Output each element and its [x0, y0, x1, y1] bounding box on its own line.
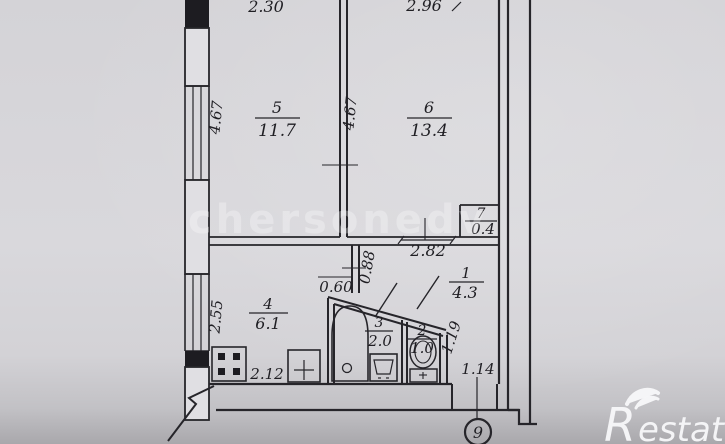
room-1-label: 1 4.3 — [449, 264, 484, 302]
logo-letter-r: R — [604, 398, 636, 444]
wall-segment — [185, 351, 209, 367]
dim-top-left: 2.30 — [247, 0, 284, 16]
room-5-number: 5 — [272, 98, 282, 117]
dim-top-right: 2.96 — [405, 0, 442, 15]
washbasin-icon — [370, 354, 397, 381]
room-4-label: 4 6.1 — [249, 295, 288, 333]
restate-logo: R estate — [604, 390, 725, 444]
wall-step — [508, 410, 537, 424]
entrance-number: 9 — [473, 423, 483, 442]
logo-text: estate — [638, 410, 725, 444]
room-4-area: 6.1 — [255, 314, 280, 333]
dimension-tick — [452, 2, 461, 11]
room-2-area: 1.0 — [410, 339, 434, 357]
floor-plan-drawing: 9 5 11.7 6 13.4 — [0, 0, 725, 444]
room-6-number: 6 — [424, 98, 434, 117]
window-icon — [185, 274, 209, 351]
wall-segment — [185, 0, 209, 28]
room-5-label: 5 11.7 — [255, 98, 300, 141]
dim-kitchen-bottom: 2.12 — [249, 365, 283, 383]
dim-bath-door: 0.60 — [319, 278, 353, 296]
dim-hall-right: 1.19 — [438, 318, 466, 356]
floorplan-photo: 9 5 11.7 6 13.4 — [0, 0, 725, 444]
bathtub-icon — [332, 306, 368, 381]
stove-icon — [212, 347, 246, 381]
room-1-number: 1 — [461, 264, 471, 282]
room-4-number: 4 — [262, 295, 273, 313]
dim-room5-depth: 4.67 — [205, 99, 227, 136]
room-2-number: 2 — [417, 323, 427, 339]
wall-pier — [185, 28, 209, 86]
bottom-wall — [168, 384, 519, 441]
kitchen-sink-icon — [288, 350, 320, 382]
room-6-label: 6 13.4 — [407, 98, 452, 141]
dim-kitchen-window: 2.55 — [206, 299, 227, 335]
dim-room6-depth: 4.67 — [339, 95, 361, 132]
door-swing — [417, 276, 439, 309]
right-wall — [499, 0, 537, 424]
room-6-area: 13.4 — [410, 121, 448, 141]
room-1-area: 4.3 — [451, 283, 477, 302]
room-3-area: 2.0 — [367, 332, 392, 350]
agency-watermark: chersonedv — [188, 197, 489, 243]
door-swing — [375, 283, 397, 317]
room-5-area: 11.7 — [258, 121, 296, 141]
dim-entrance: 1.14 — [461, 360, 494, 378]
dim-hall-width: 2.82 — [409, 241, 446, 260]
room-2-label: 2 1.0 — [408, 323, 437, 357]
room-3-number: 3 — [375, 315, 384, 331]
